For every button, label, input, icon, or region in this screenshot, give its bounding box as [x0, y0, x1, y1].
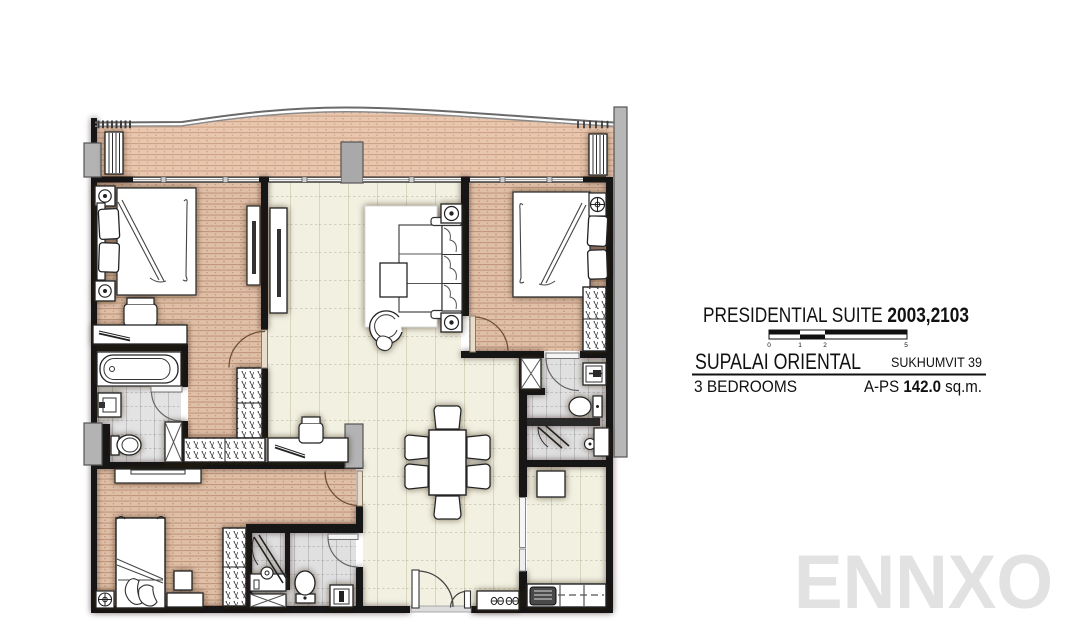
svg-text:3 BEDROOMS: 3 BEDROOMS [694, 378, 797, 396]
svg-text:A-PS 142.0 sq.m.: A-PS 142.0 sq.m. [864, 378, 982, 396]
svg-text:ENNXO: ENNXO [794, 540, 1053, 625]
svg-text:SUPALAI ORIENTAL: SUPALAI ORIENTAL [695, 349, 861, 374]
svg-text:1: 1 [798, 342, 802, 349]
svg-text:SUKHUMVIT 39: SUKHUMVIT 39 [891, 355, 982, 370]
svg-text:5: 5 [904, 342, 908, 349]
svg-text:0: 0 [767, 342, 771, 349]
svg-text:PRESIDENTIAL SUITE 2003,2103: PRESIDENTIAL SUITE 2003,2103 [703, 304, 969, 327]
svg-text:2: 2 [823, 342, 827, 349]
